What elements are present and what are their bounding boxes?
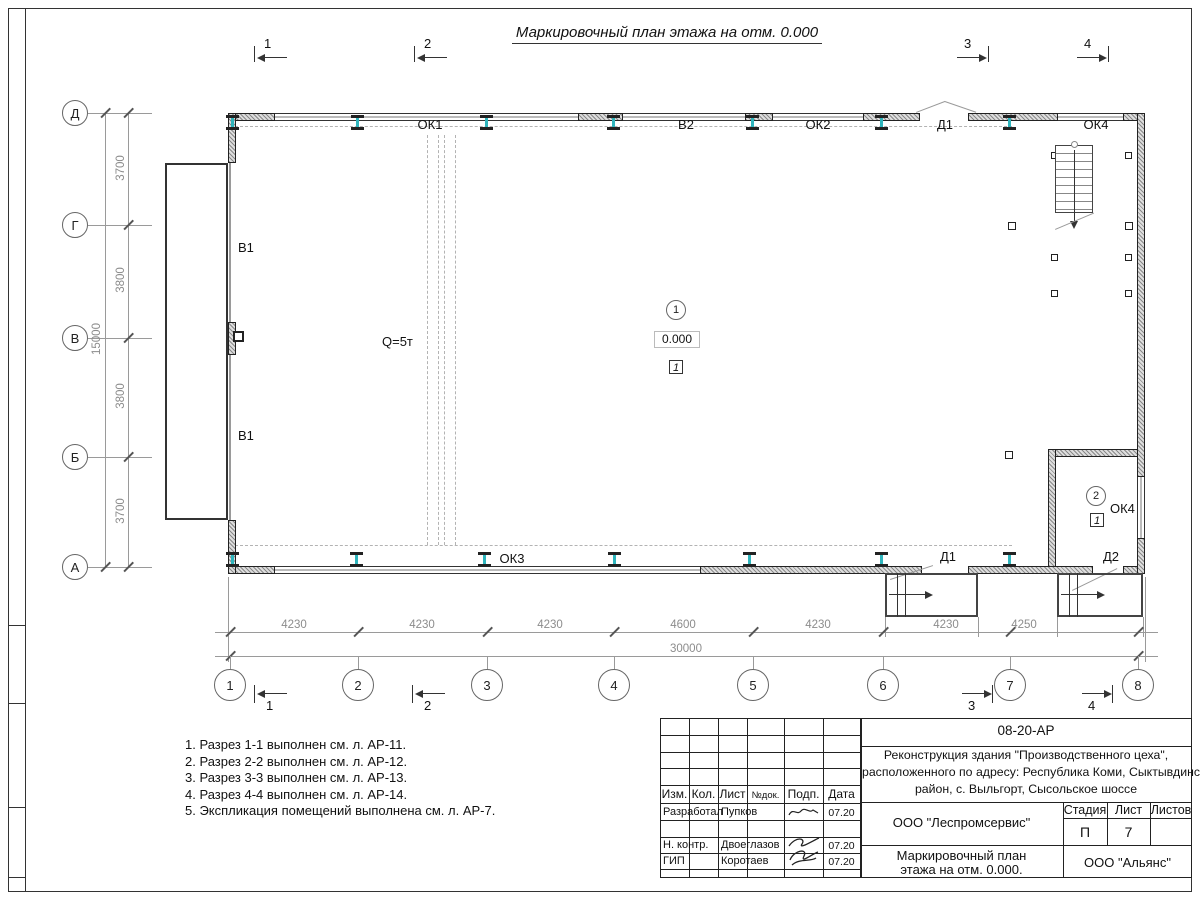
drawing-title-text: Маркировочный план этажа на отм. 0.000 [512,24,822,44]
tb-line [660,869,860,870]
axis-line [1010,656,1011,669]
tb-header-kol: Кол. [689,787,718,801]
section-line [957,57,979,58]
axis-line [358,656,359,669]
dim-label-left: 3800 [115,260,127,300]
axis-line [88,567,152,568]
section-mark-2-top: 2 [424,36,431,51]
note-line: 4. Разрез 4-4 выполнен см. л. АР-14. [185,787,495,804]
dim-line-left-total [105,113,106,567]
room1-number: 1 [666,300,686,320]
dim-label-bottom: 4230 [269,619,319,631]
wall-niche-marker [233,331,244,342]
edge-stamp-line [8,703,25,704]
i-beam-column [1003,115,1016,130]
tb-row-name: Двоеглазов [721,839,779,851]
section-mark-4-bottom: 4 [1088,698,1095,713]
column-marker [1008,222,1016,230]
tb-doc-title-line1: Маркировочный план [860,848,1063,863]
witness-line [228,577,229,662]
tb-line [660,752,860,753]
tb-project-line3: район, с. Выльгорт, Сысольское шоссе [862,782,1190,796]
window-ok4-right [1137,477,1145,538]
tb-line [660,853,860,854]
axis-line [883,656,884,669]
tb-row-name: Коротаев [721,855,769,867]
section-mark-3-bottom: 3 [968,698,975,713]
column-marker [1051,290,1058,297]
crane-rail-line [438,135,439,545]
tb-header-izm: Изм. [660,787,689,801]
crane-rail-line [427,135,428,545]
axis-bubble-7: 7 [994,669,1026,701]
tb-project-line1: Реконструкция здания "Производственного … [862,748,1190,762]
axis-bubble-6: 6 [867,669,899,701]
wall-pier [863,113,920,121]
axis-line [614,656,615,669]
section-tick [414,46,415,62]
section-arrow-right-icon [1104,690,1112,698]
tb-line [660,785,860,786]
section-arrow-left-icon [257,690,265,698]
tb-company: ООО "Альянс" [1063,855,1192,870]
section-tick [1112,685,1113,703]
label-ok1: ОК1 [405,117,455,132]
dim-line-left-segments [128,113,129,567]
section-line [265,57,287,58]
label-v1-lower: В1 [238,428,254,443]
axis-line [1138,656,1139,669]
stoop-arrow-line [889,594,925,595]
label-d2: Д2 [1086,549,1136,564]
axis-line [487,656,488,669]
dim-label-bottom: 4230 [793,619,843,631]
dim-line-bottom-total [215,656,1158,657]
tb-header-ndok: №док. [747,790,784,801]
tb-project-line2: расположенного по адресу: Республика Ком… [862,765,1190,779]
dim-label-bottom-total: 30000 [661,643,711,655]
axis-bubble-d: Д [62,100,88,126]
tb-line [660,768,860,769]
section-arrow-left-icon [257,54,265,62]
room2-number: 2 [1086,486,1106,506]
axis-line [88,113,152,114]
dim-label-left-total: 15000 [91,319,103,359]
column-marker [1125,290,1132,297]
tb-row-date: 07.20 [823,840,860,852]
tb-stage-label: Стадия [1063,803,1107,817]
stoop-arrow-right-icon [1097,591,1105,599]
axis-bubble-8: 8 [1122,669,1154,701]
stoop-arrow-right-icon [925,591,933,599]
section-line [1082,693,1104,694]
window-ok3 [275,566,700,574]
tb-doc-title-line2: этажа на отм. 0.000. [860,862,1063,877]
label-v2: В2 [661,117,711,132]
label-crane-capacity: Q=5т [382,334,413,349]
section-arrow-right-icon [1099,54,1107,62]
annex-outline [165,163,228,520]
window-v1-line [229,163,231,322]
room2-wall [1048,449,1056,567]
i-beam-column [480,115,493,130]
i-beam-column [875,115,888,130]
section-mark-1-top: 1 [264,36,271,51]
section-arrow-right-icon [979,54,987,62]
section-tick [988,46,989,62]
axis-line [88,225,152,226]
i-beam-column [875,552,888,567]
section-mark-3-top: 3 [964,36,971,51]
i-beam-column [226,552,239,567]
section-tick [254,46,255,62]
crane-runway-line [235,545,1012,546]
column-marker [1125,152,1132,159]
dim-label-bottom: 4600 [658,619,708,631]
stoop-arrow-line [1061,594,1097,595]
label-v1-upper: В1 [238,240,254,255]
label-ok3: ОК3 [487,551,537,566]
tb-stage-value: П [1063,824,1107,840]
axis-bubble-4: 4 [598,669,630,701]
section-mark-2-bottom: 2 [424,698,431,713]
drawing-sheet: Маркировочный план этажа на отм. 0.000 1… [0,0,1200,900]
tb-header-data: Дата [823,787,860,801]
section-arrow-right-icon [984,690,992,698]
i-beam-column [607,115,620,130]
stairs-start-dot [1071,141,1078,148]
axis-bubble-b: Б [62,444,88,470]
dim-label-bottom: 4230 [525,619,575,631]
tb-header-list: Лист [718,787,747,801]
tb-line [860,746,1192,747]
witness-line [1057,617,1058,637]
section-tick [412,685,413,703]
section-tick [1108,46,1109,62]
axis-bubble-5: 5 [737,669,769,701]
note-line: 5. Экспликация помещений выполнена см. л… [185,803,495,820]
dim-label-bottom: 4250 [999,619,1049,631]
edge-stamp-line [8,877,25,878]
drawing-title: Маркировочный план этажа на отм. 0.000 [407,24,927,41]
axis-line [753,656,754,669]
label-ok2: ОК2 [793,117,843,132]
stairs-direction-line [1074,150,1075,222]
i-beam-column [746,115,759,130]
crane-rail-line [444,135,445,545]
witness-line [1145,577,1146,662]
note-line: 3. Разрез 3-3 выполнен см. л. АР-13. [185,770,495,787]
dim-label-left: 3700 [115,491,127,531]
axis-bubble-v: В [62,325,88,351]
section-arrow-left-icon [417,54,425,62]
section-arrow-left-icon [415,690,423,698]
i-beam-column [608,552,621,567]
frame-left-line [25,8,26,892]
label-ok4-room2: ОК4 [1110,501,1135,516]
note-line: 2. Разрез 2-2 выполнен см. л. АР-12. [185,754,495,771]
tb-line [1063,818,1192,819]
tb-org: ООО "Леспромсервис" [860,815,1063,830]
section-line [423,693,445,694]
section-mark-1-bottom: 1 [266,698,273,713]
column-marker [1125,222,1133,230]
tb-header-podp: Подп. [784,787,823,801]
tb-line [660,735,860,736]
note-line: 1. Разрез 1-1 выполнен см. л. АР-11. [185,737,495,754]
i-beam-column [226,115,239,130]
i-beam-column [1003,552,1016,567]
witness-line [978,617,979,637]
axis-line [230,656,231,669]
tb-row-role: ГИП [663,855,685,867]
i-beam-column [350,552,363,567]
column-marker [1051,254,1058,261]
tb-sheet-value: 7 [1107,824,1150,840]
dim-label-bottom: 4230 [921,619,971,631]
wall-pier [1137,113,1145,477]
section-line [1077,57,1099,58]
column-marker [1005,451,1013,459]
section-tick [992,685,993,703]
section-line [962,693,984,694]
section-line [425,57,447,58]
wall-pier [1137,538,1145,574]
tb-sheets-label: Листов [1150,803,1192,817]
tb-line [660,837,860,838]
edge-stamp-line [8,807,25,808]
i-beam-column [743,552,756,567]
dim-label-bottom: 4230 [397,619,447,631]
notes-block: 1. Разрез 1-1 выполнен см. л. АР-11. 2. … [185,737,495,820]
column-marker [1125,254,1132,261]
section-line [265,693,287,694]
window-v1-line [229,355,231,520]
room1-floor-type: 1 [669,360,683,374]
tb-row-name: Пупков [721,806,757,818]
room1-level: 0.000 [654,331,700,348]
axis-bubble-1: 1 [214,669,246,701]
crane-rail-line [455,135,456,545]
axis-bubble-a: А [62,554,88,580]
room2-wall [1048,449,1138,457]
tb-doc-code: 08-20-АР [860,723,1192,738]
tb-row-role: Н. контр. [663,839,708,851]
signature [787,805,820,818]
label-d1-top: Д1 [920,117,970,132]
tb-row-role: Разработал [663,806,723,818]
section-tick [254,685,255,703]
section-mark-4-top: 4 [1084,36,1091,51]
axis-bubble-3: 3 [471,669,503,701]
label-d1-bottom: Д1 [923,549,973,564]
label-ok4-top: ОК4 [1071,117,1121,132]
tb-sheet-label: Лист [1107,803,1150,817]
room2-floor-type: 1 [1090,513,1104,527]
tb-line [860,845,1192,846]
axis-bubble-2: 2 [342,669,374,701]
tb-row-date: 07.20 [823,807,860,819]
dim-label-left: 3800 [115,376,127,416]
edge-stamp-line [8,625,25,626]
dim-label-left: 3700 [115,148,127,188]
axis-line [88,457,152,458]
signature [786,834,822,868]
i-beam-column [351,115,364,130]
tb-line [660,820,860,821]
axis-bubble-g: Г [62,212,88,238]
tb-row-date: 07.20 [823,856,860,868]
tb-line [660,803,860,804]
